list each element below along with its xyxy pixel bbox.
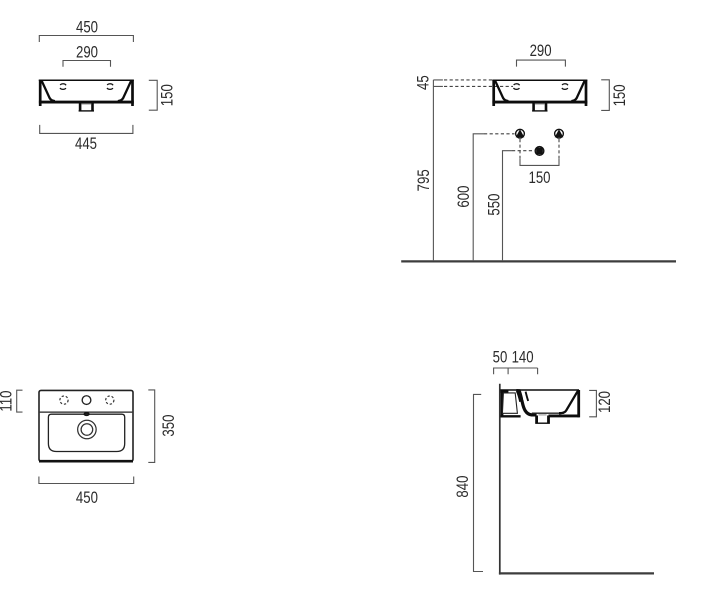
svg-text:150: 150 — [158, 84, 177, 106]
svg-text:150: 150 — [528, 169, 550, 188]
svg-text:450: 450 — [76, 18, 98, 37]
svg-text:110: 110 — [0, 391, 16, 412]
svg-text:795: 795 — [414, 169, 433, 191]
svg-text:45: 45 — [414, 75, 433, 90]
svg-text:50: 50 — [493, 348, 508, 367]
svg-text:120: 120 — [596, 391, 615, 413]
svg-text:550: 550 — [485, 194, 504, 216]
svg-text:290: 290 — [530, 42, 552, 61]
svg-text:140: 140 — [512, 348, 534, 367]
svg-text:840: 840 — [454, 476, 473, 498]
svg-text:350: 350 — [160, 415, 179, 437]
svg-text:600: 600 — [455, 186, 474, 208]
svg-text:450: 450 — [76, 489, 98, 508]
svg-text:290: 290 — [76, 43, 98, 62]
svg-text:150: 150 — [610, 84, 629, 106]
svg-text:445: 445 — [75, 135, 97, 154]
